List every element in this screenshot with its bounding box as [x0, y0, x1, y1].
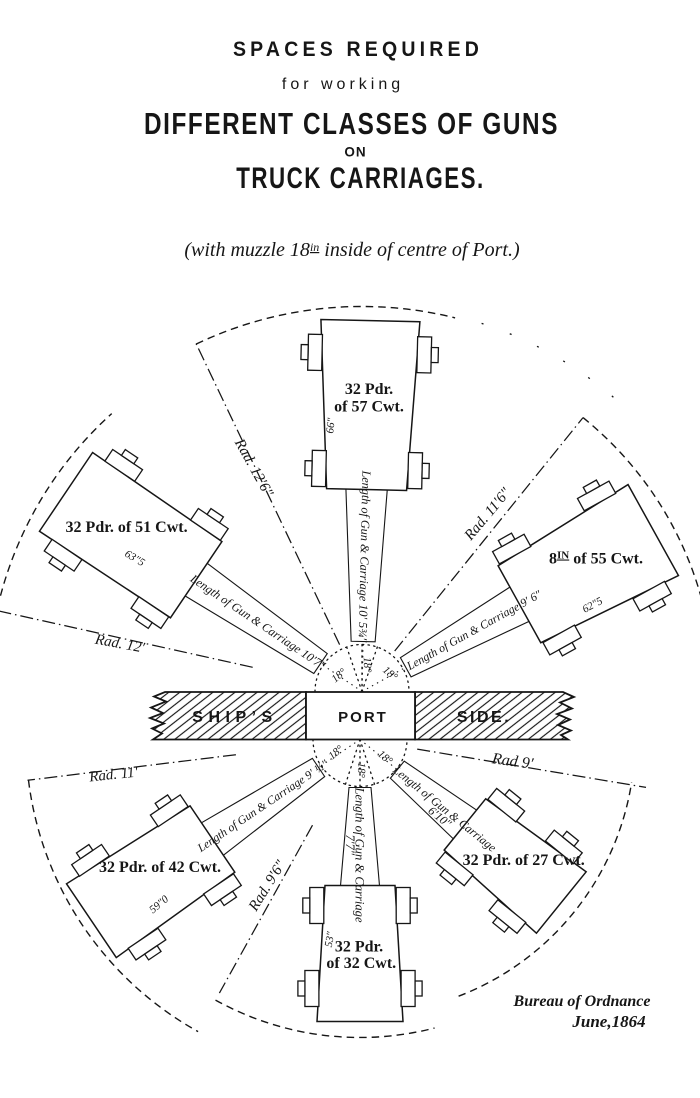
svg-text:DIFFERENT CLASSES OF GUNS: DIFFERENT CLASSES OF GUNS [144, 106, 559, 140]
svg-text:18°: 18° [355, 762, 368, 778]
svg-text:ON: ON [344, 145, 366, 160]
svg-text:for working: for working [282, 76, 404, 93]
svg-text:TRUCK CARRIAGES.: TRUCK CARRIAGES. [236, 161, 484, 195]
svg-text:June,1864: June,1864 [571, 1012, 645, 1031]
svg-text:SIDE.: SIDE. [457, 709, 511, 726]
svg-text:32 Pdr.: 32 Pdr. [335, 938, 383, 955]
svg-text:18°: 18° [361, 657, 374, 673]
svg-text:66″: 66″ [324, 417, 338, 434]
svg-text:SHIP’S: SHIP’S [192, 709, 277, 726]
svg-text:32 Pdr.: 32 Pdr. [345, 381, 393, 398]
svg-text:Bureau of Ordnance: Bureau of Ordnance [513, 993, 651, 1010]
svg-text:of 32 Cwt.: of 32 Cwt. [326, 955, 396, 972]
svg-text:7′7″: 7′7″ [343, 835, 357, 856]
svg-text:of 57 Cwt.: of 57 Cwt. [334, 399, 404, 416]
svg-text:32 Pdr. of 51 Cwt.: 32 Pdr. of 51 Cwt. [66, 519, 188, 536]
svg-text:SPACES REQUIRED: SPACES REQUIRED [233, 38, 483, 61]
svg-text:(with muzzle 18in inside of ce: (with muzzle 18in inside of centre of Po… [184, 239, 520, 261]
svg-text:32 Pdr. of 42 Cwt.: 32 Pdr. of 42 Cwt. [99, 859, 221, 876]
svg-text:32 Pdr. of 27 Cwt.: 32 Pdr. of 27 Cwt. [463, 852, 585, 869]
svg-text:PORT: PORT [338, 709, 388, 726]
